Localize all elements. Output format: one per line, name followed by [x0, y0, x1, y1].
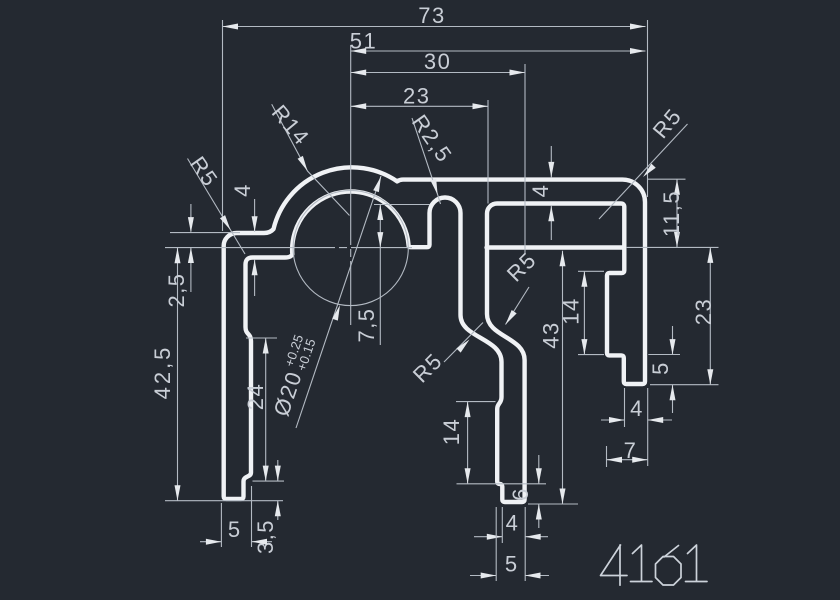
- svg-text:51: 51: [350, 29, 377, 54]
- svg-text:5: 5: [505, 552, 519, 577]
- svg-text:4: 4: [506, 511, 520, 536]
- svg-text:30: 30: [424, 49, 451, 74]
- svg-text:4: 4: [230, 183, 255, 197]
- svg-text:14: 14: [439, 418, 464, 445]
- svg-text:7: 7: [624, 438, 638, 463]
- svg-text:6: 6: [508, 487, 533, 501]
- svg-text:3,5: 3,5: [253, 519, 278, 554]
- svg-text:4: 4: [528, 184, 553, 198]
- svg-text:23: 23: [403, 84, 430, 109]
- svg-text:4: 4: [630, 396, 644, 421]
- svg-text:7,5: 7,5: [354, 307, 379, 342]
- svg-text:43: 43: [539, 321, 564, 348]
- svg-text:11,5: 11,5: [659, 190, 684, 237]
- svg-text:5: 5: [648, 361, 673, 375]
- svg-text:73: 73: [418, 3, 445, 28]
- svg-text:23: 23: [691, 298, 716, 325]
- svg-text:24: 24: [243, 383, 268, 410]
- svg-text:5: 5: [228, 517, 242, 542]
- svg-text:42,5: 42,5: [150, 345, 175, 400]
- svg-text:2,5: 2,5: [164, 272, 189, 307]
